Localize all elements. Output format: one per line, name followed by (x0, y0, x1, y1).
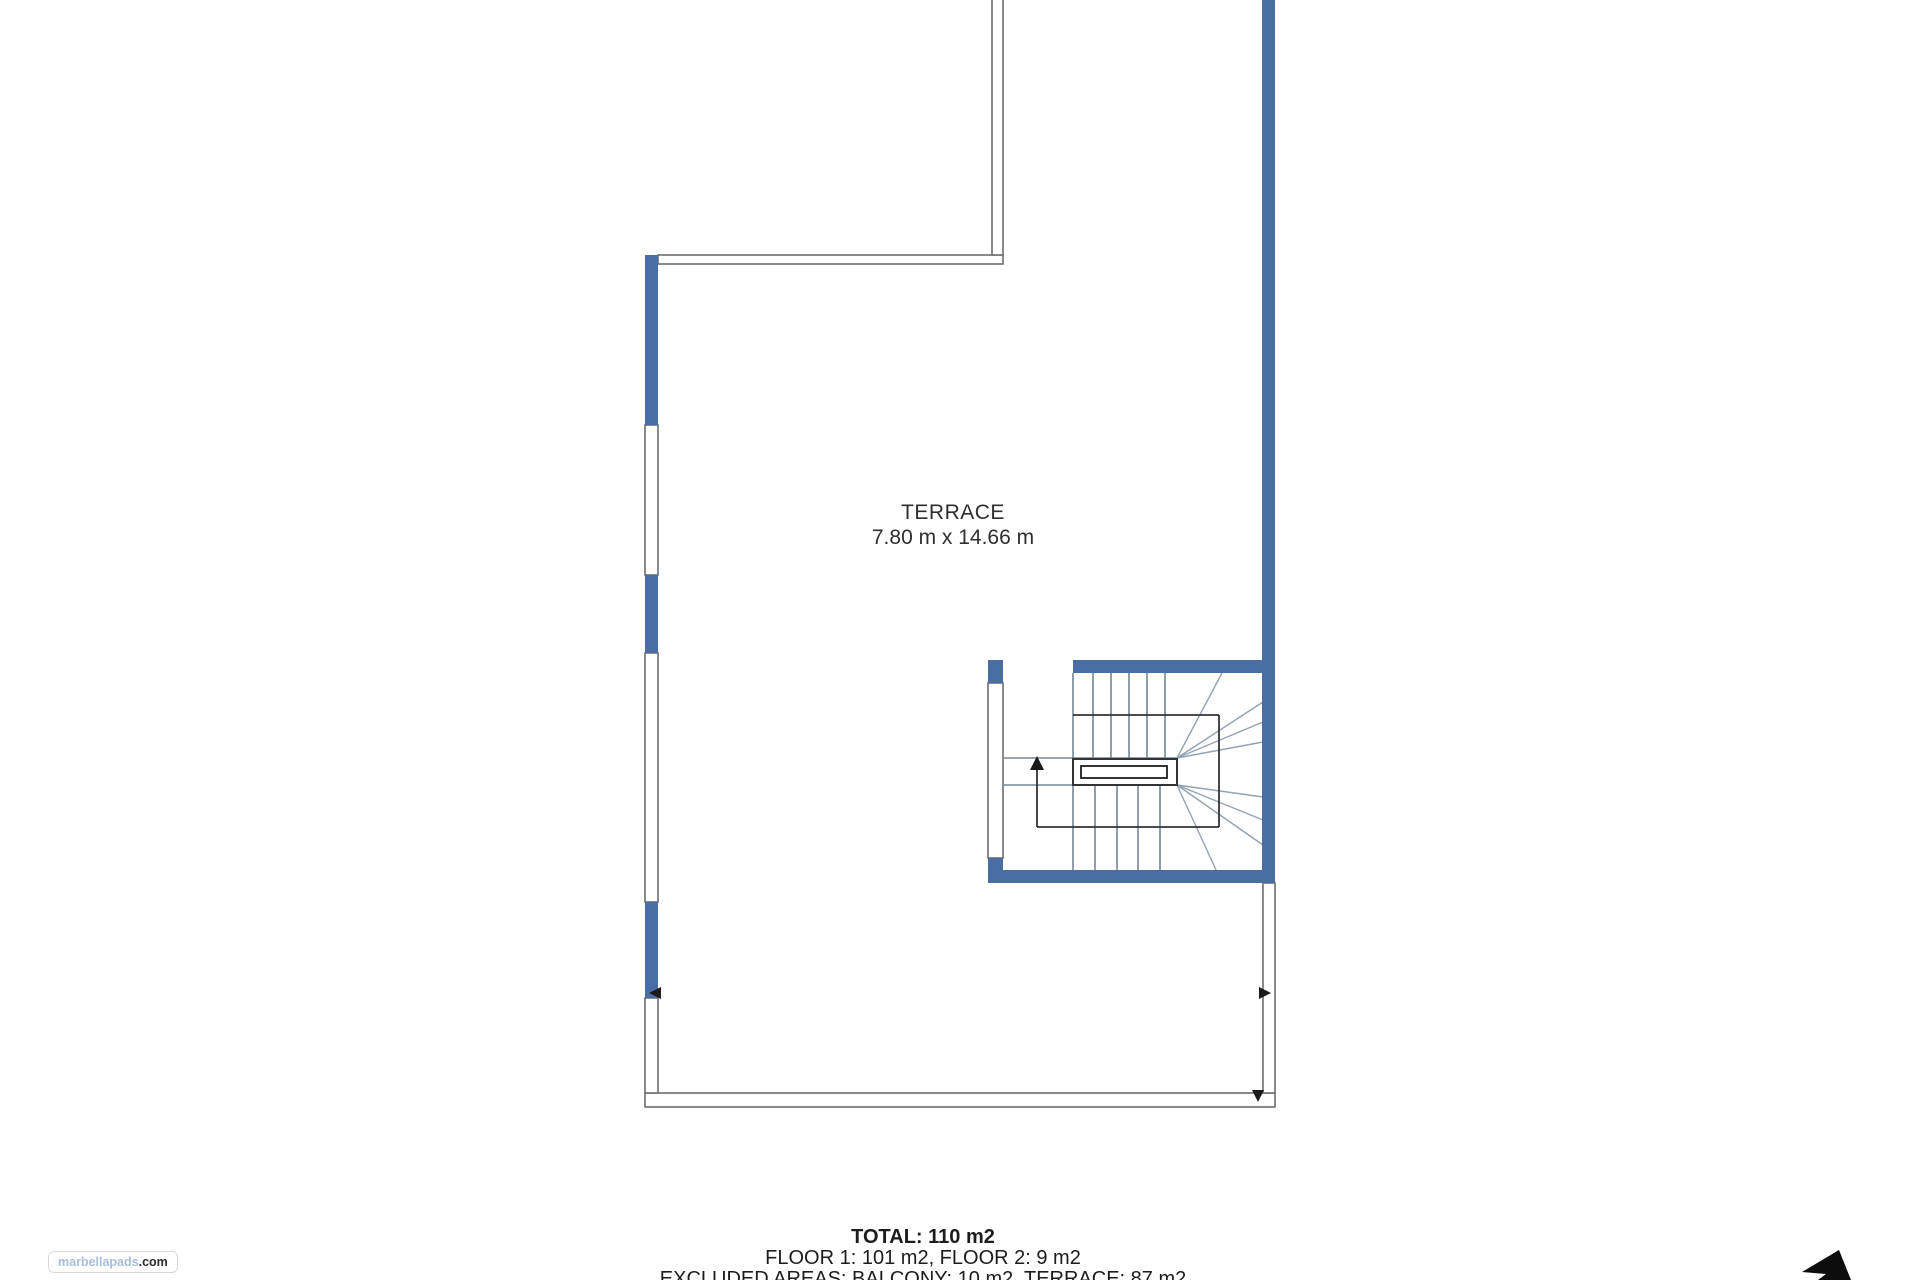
summary-excluded-areas: EXCLUDED AREAS: BALCONY: 10 m2, TERRACE:… (660, 1269, 1186, 1280)
room-dimensions: 7.80 m x 14.66 m (872, 525, 1034, 550)
area-summary: TOTAL: 110 m2 FLOOR 1: 101 m2, FLOOR 2: … (660, 1227, 1186, 1280)
room-label-terrace: TERRACE 7.80 m x 14.66 m (872, 500, 1034, 550)
floorplan-drawing (0, 0, 1920, 1280)
wall-stair-top-wall (1073, 660, 1262, 673)
marbellapads-logo: marbellapads.com (48, 1251, 178, 1273)
stair-winder-line (1177, 722, 1263, 758)
wall-left-wall-upper (645, 255, 658, 425)
wall-stair-left-top-block (988, 660, 1003, 683)
wall-left-wall-lower (645, 902, 658, 998)
window-stair-left-window (988, 683, 1003, 858)
floorplan-canvas: TERRACE 7.80 m x 14.66 m TOTAL: 110 m2 F… (0, 0, 1920, 1280)
window-left-window-3 (645, 998, 658, 1093)
wall-stair-left-bottom-block (988, 858, 1003, 883)
thin-wall-bottom-terrace-wall (645, 1093, 1275, 1107)
wall-right-wall (1262, 0, 1275, 883)
logo-brand-text: marbellapads (58, 1254, 139, 1270)
wall-left-wall-middle (645, 575, 658, 653)
summary-floors: FLOOR 1: 101 m2, FLOOR 2: 9 m2 (660, 1248, 1186, 1269)
stair-winder-line (1177, 785, 1217, 872)
summary-total: TOTAL: 110 m2 (660, 1227, 1186, 1248)
stair-rail-inner (1081, 766, 1167, 778)
window-left-window-1 (645, 425, 658, 575)
logo-suffix-text: .com (139, 1254, 168, 1270)
room-name: TERRACE (872, 500, 1034, 525)
wall-stair-bottom-wall (1003, 870, 1275, 883)
thin-wall-right-terrace-wall-lower (1263, 883, 1275, 1093)
window-left-window-2 (645, 653, 658, 902)
thin-wall-top-balcony-wall-horizontal (658, 255, 1003, 264)
thin-wall-top-balcony-wall-vertical (992, 0, 1003, 255)
compass-star-icon (1802, 1250, 1851, 1280)
